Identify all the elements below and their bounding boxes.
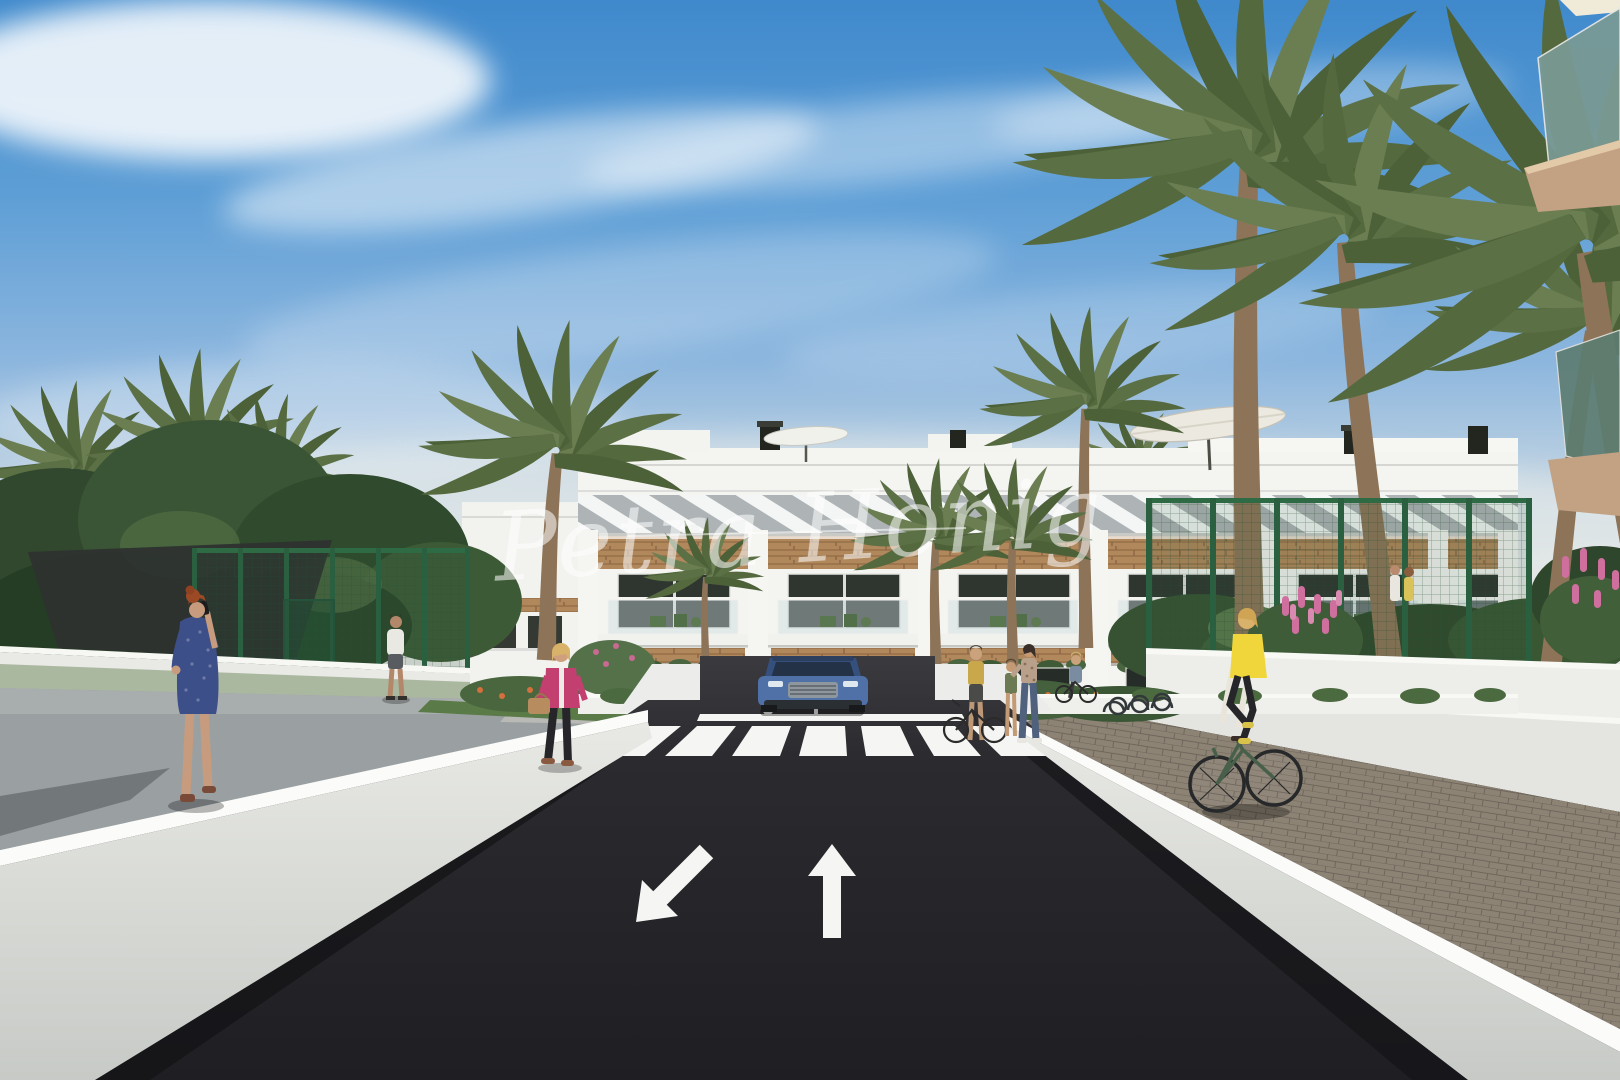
suv-car (758, 656, 868, 716)
balcony-slab (1548, 452, 1620, 516)
render-canvas: Petra Honig (0, 0, 1620, 1080)
architectural-render-scene: Petra Honig (0, 0, 1620, 1080)
glass-balustrade (1556, 330, 1620, 470)
handbag (528, 698, 550, 714)
